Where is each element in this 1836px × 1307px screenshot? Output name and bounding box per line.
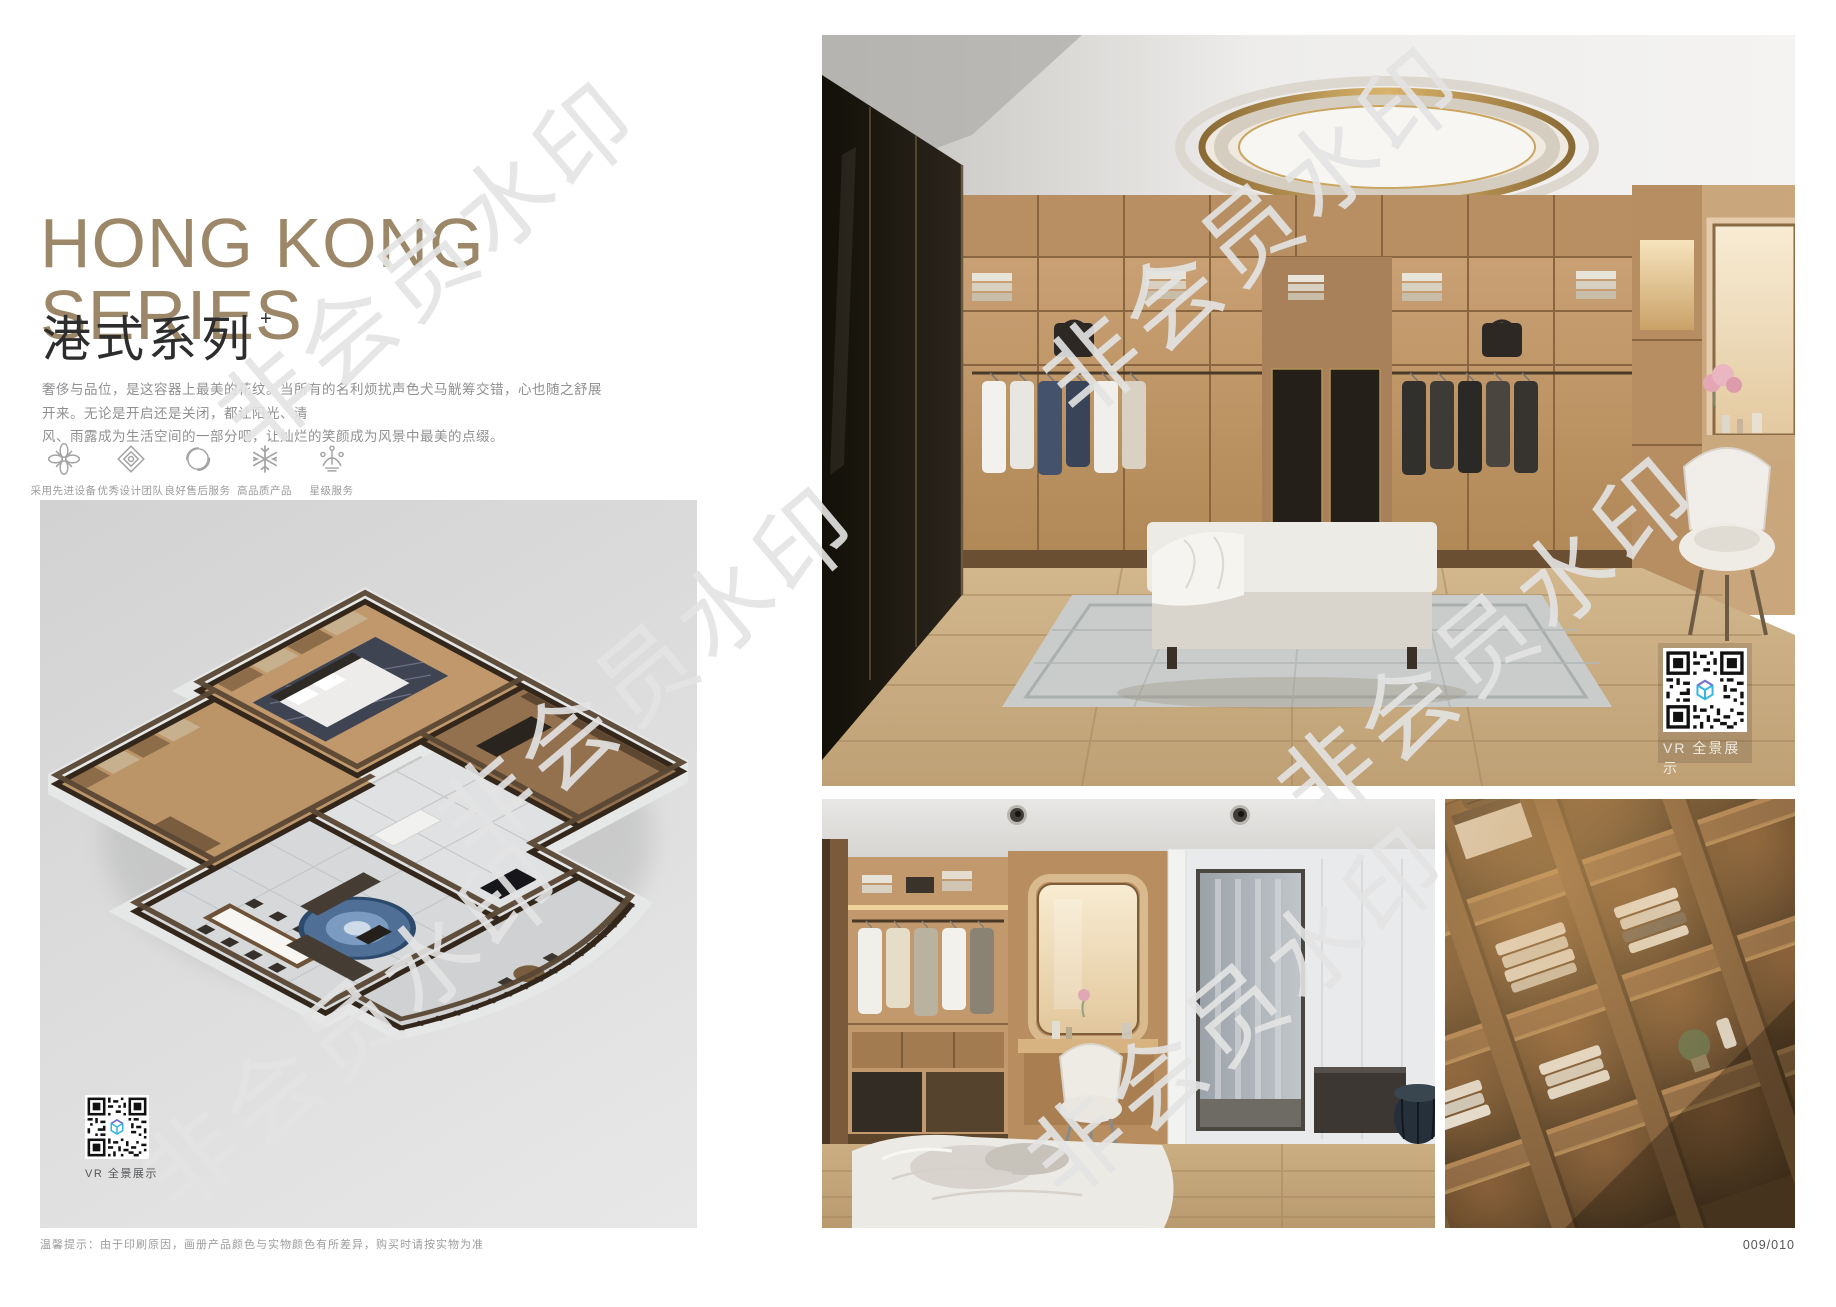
feature-advanced-equipment: 采用先进设备 [30,442,97,498]
feature-icons-row: 采用先进设备 优秀设计团队 良好售后服务 高品质产品 [30,442,365,498]
isometric-floorplan [48,528,688,1108]
qr-caption: VR 全景展示 [85,1165,169,1181]
qr-code [1663,648,1747,732]
feature-star-service: 星级服务 [298,442,365,498]
bottom-left-photo-dressing-area [822,799,1435,1228]
series-description: 奢侈与品位，是这容器上最美的花纹。当所有的名利烦扰声色犬马觥筹交错，心也随之舒展… [42,378,607,449]
description-line1: 奢侈与品位，是这容器上最美的花纹。当所有的名利烦扰声色犬马觥筹交错，心也随之舒展… [42,378,607,425]
feature-label: 优秀设计团队 [98,483,164,498]
snowflake-icon [248,442,282,476]
ornament-diamond-icon [114,442,148,476]
footer-disclaimer: 温馨提示：由于印刷原因，画册产品颜色与实物颜色有所差异，购买时请按实物为准 [40,1236,484,1252]
feature-design-team: 优秀设计团队 [97,442,164,498]
series-title-cn: 港式系列+ [42,300,270,371]
ring-icon [181,442,215,476]
back-wall-shelving [952,195,1642,568]
floorplan-panel: VR 全景展示 [40,500,697,1228]
series-title-line1: HONG KONG [40,207,485,279]
ornament-flower-icon [47,442,81,476]
feature-label: 星级服务 [310,483,354,498]
gold-ring-ceiling-light [1180,81,1594,213]
feature-label: 采用先进设备 [31,483,97,498]
page-number: 009/010 [1743,1238,1795,1252]
feature-label: 高品质产品 [237,483,292,498]
floorplan-body [48,602,688,1054]
feature-after-sales: 良好售后服务 [164,442,231,498]
main-photo-qr-block: VR 全景展示 [1663,648,1747,778]
main-photo-walkin-closet: VR 全景展示 [822,35,1795,786]
qr-caption: VR 全景展示 [1663,738,1747,778]
floorplan-qr-block: VR 全景展示 [85,1095,169,1181]
qr-code [85,1095,149,1159]
plus-mark: + [260,308,276,330]
feature-label: 良好售后服务 [165,483,231,498]
bed-with-clothes [852,1135,1174,1228]
star-service-icon [315,442,349,476]
bottom-right-photo-shelf-closeup [1445,799,1795,1228]
catalog-page: HONG KONG SERIES 港式系列+ 奢侈与品位，是这容器上最美的花纹。… [0,0,1836,1307]
feature-quality-product: 高品质产品 [231,442,298,498]
vanity-chair [1679,448,1775,641]
